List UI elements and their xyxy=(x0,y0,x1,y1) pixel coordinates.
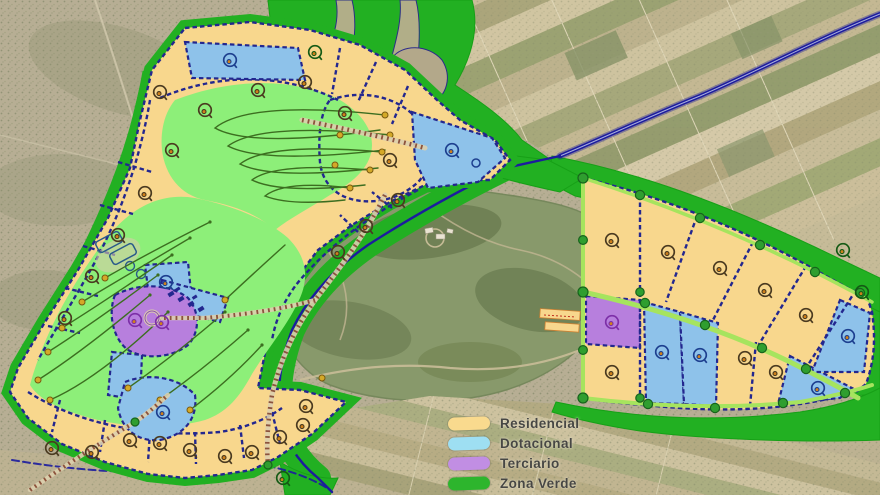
terciario-label: Terciario xyxy=(500,456,560,471)
zona-verde-swatch xyxy=(448,476,490,490)
residencial-swatch xyxy=(448,416,490,430)
zoning-map-page: Residencial Dotacional Terciario Zona Ve… xyxy=(0,0,880,495)
residencial-label: Residencial xyxy=(500,416,579,431)
legend-item-residencial: Residencial xyxy=(448,414,579,432)
terciario-swatch xyxy=(448,456,490,470)
dotacional-label: Dotacional xyxy=(500,436,573,451)
legend-item-zona-verde: Zona Verde xyxy=(448,474,579,492)
map-legend: Residencial Dotacional Terciario Zona Ve… xyxy=(448,414,579,492)
legend-item-terciario: Terciario xyxy=(448,454,579,472)
zona-verde-label: Zona Verde xyxy=(500,476,577,491)
dotacional-swatch xyxy=(448,436,490,450)
zoning-map-canvas[interactable] xyxy=(0,0,880,495)
legend-item-dotacional: Dotacional xyxy=(448,434,579,452)
